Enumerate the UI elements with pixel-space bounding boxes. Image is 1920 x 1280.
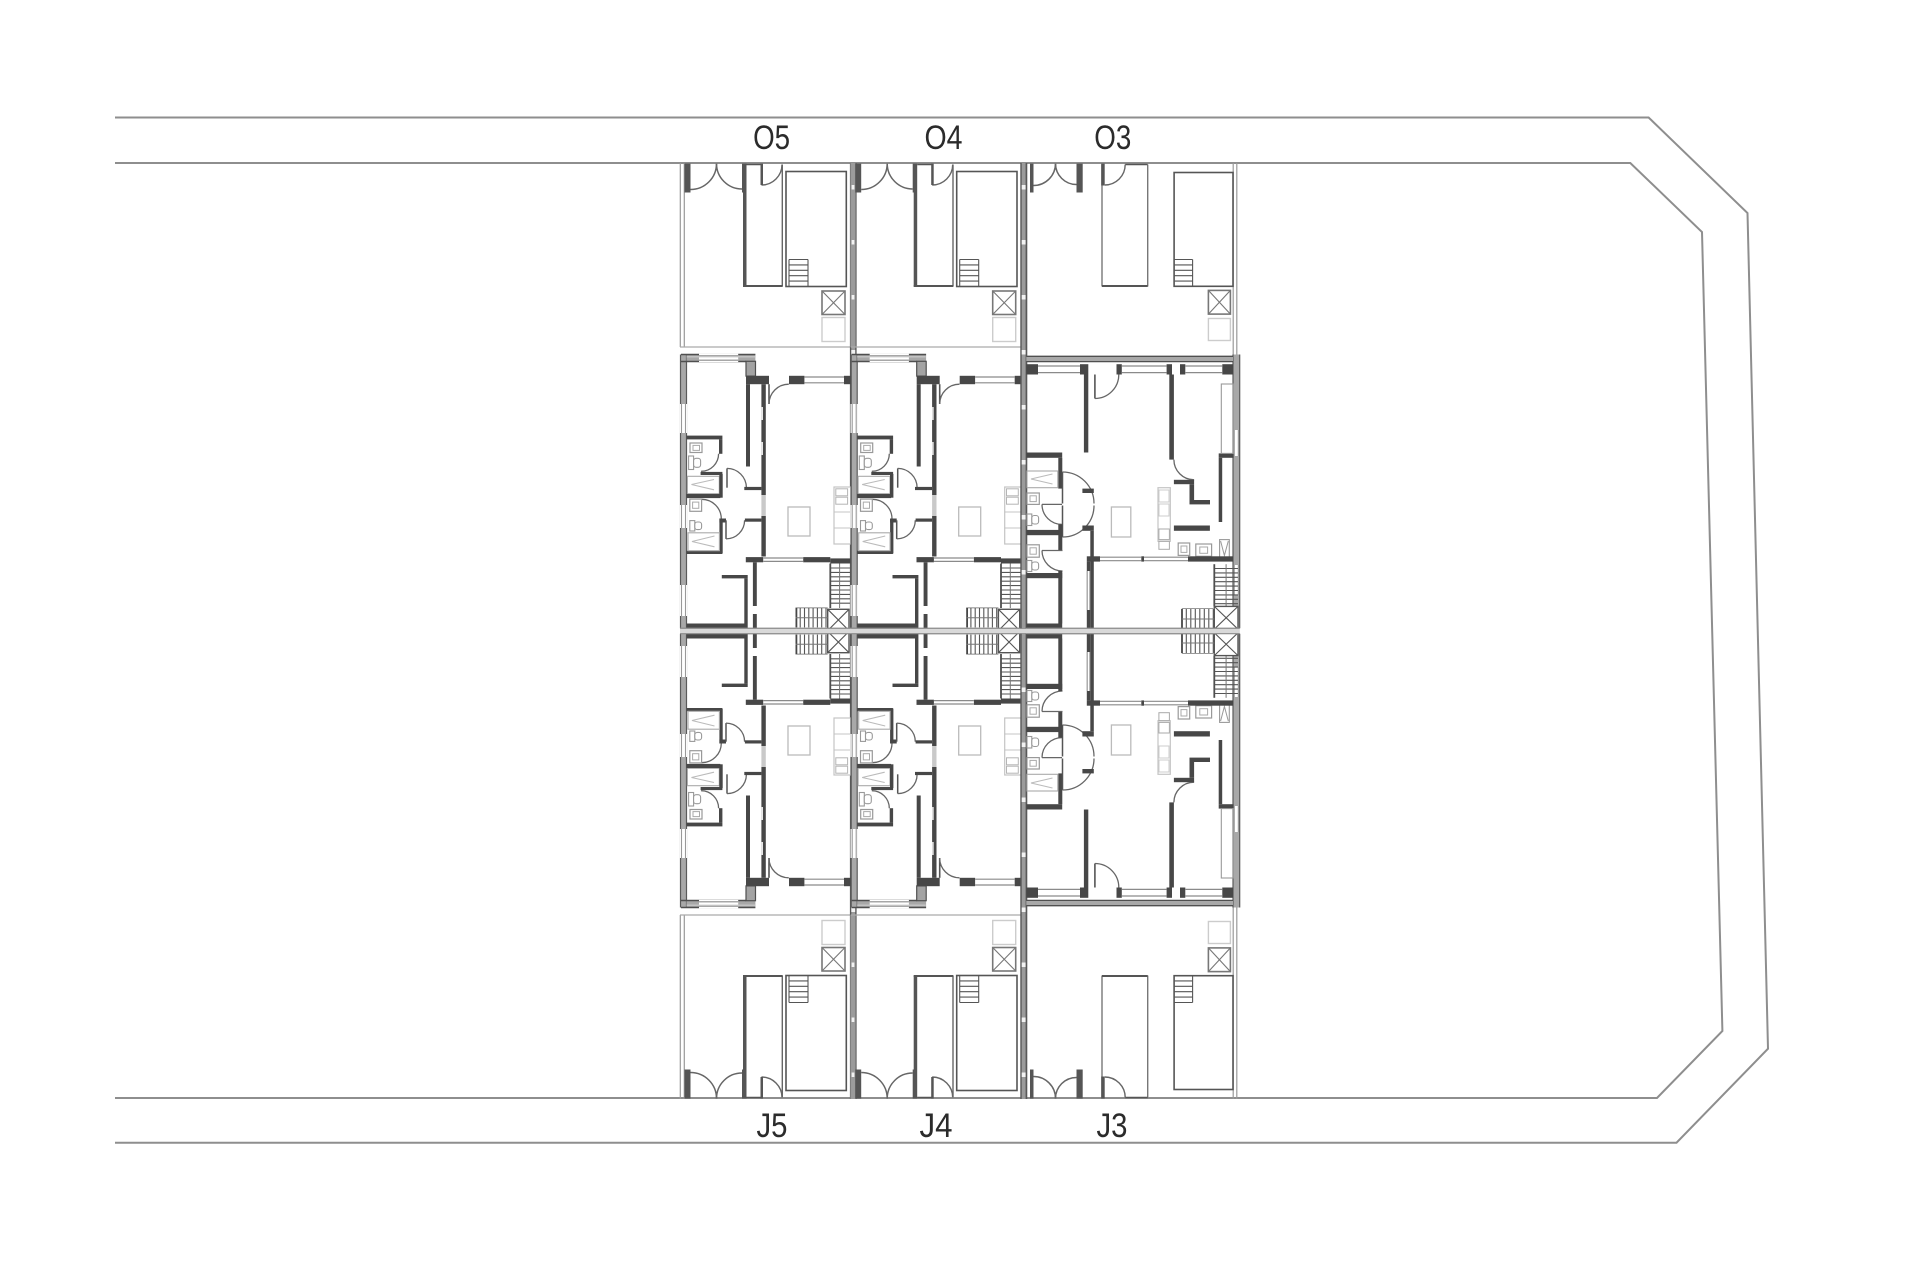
svg-text:O5: O5 [753, 119, 790, 157]
svg-text:O4: O4 [925, 119, 963, 157]
svg-text:J5: J5 [757, 1107, 788, 1145]
svg-text:O3: O3 [1094, 119, 1131, 157]
svg-text:J3: J3 [1097, 1107, 1128, 1145]
svg-text:J4: J4 [920, 1107, 953, 1145]
